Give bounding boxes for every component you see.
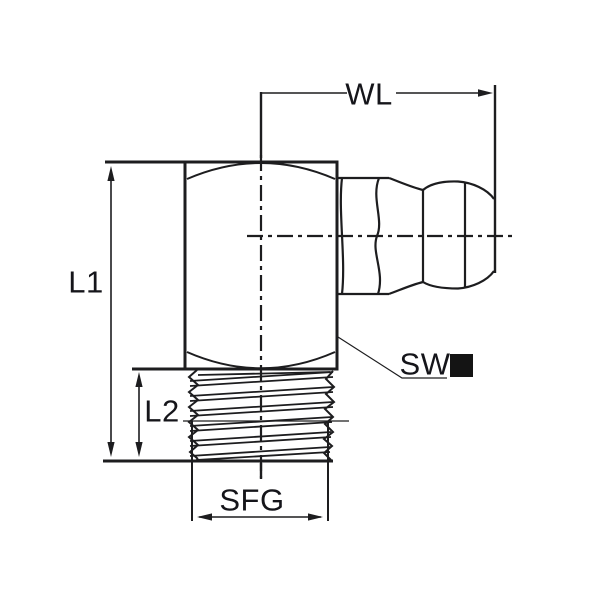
neck-bottom-taper xyxy=(389,282,423,294)
ball-bottom-arc xyxy=(423,271,494,289)
dimension-label-sw: SW xyxy=(400,349,451,380)
sfg-arrowhead-right xyxy=(308,513,323,520)
neck-top-taper xyxy=(389,178,423,190)
threaded-stud xyxy=(183,370,349,460)
l1-arrowhead-up xyxy=(107,166,114,181)
ball-top-arc xyxy=(423,181,494,199)
grease-nipple-drawing xyxy=(0,0,600,600)
dimension-l1 xyxy=(103,162,333,461)
technical-drawing-canvas: WL L1 L2 SW SFG xyxy=(0,0,600,600)
dimension-label-l2: L2 xyxy=(144,396,179,427)
wl-arrowhead-right xyxy=(478,89,493,96)
centerlines xyxy=(247,155,515,478)
sfg-arrowhead-left xyxy=(197,513,212,520)
sw-filled-square-marker xyxy=(450,354,473,377)
dimension-label-wl: WL xyxy=(345,79,393,110)
l2-arrowhead-down xyxy=(135,442,142,457)
dimension-label-l1: L1 xyxy=(68,267,103,298)
l2-arrowhead-up xyxy=(135,372,142,387)
dimension-label-sfg: SFG xyxy=(219,485,284,516)
l1-arrowhead-down xyxy=(107,442,114,457)
